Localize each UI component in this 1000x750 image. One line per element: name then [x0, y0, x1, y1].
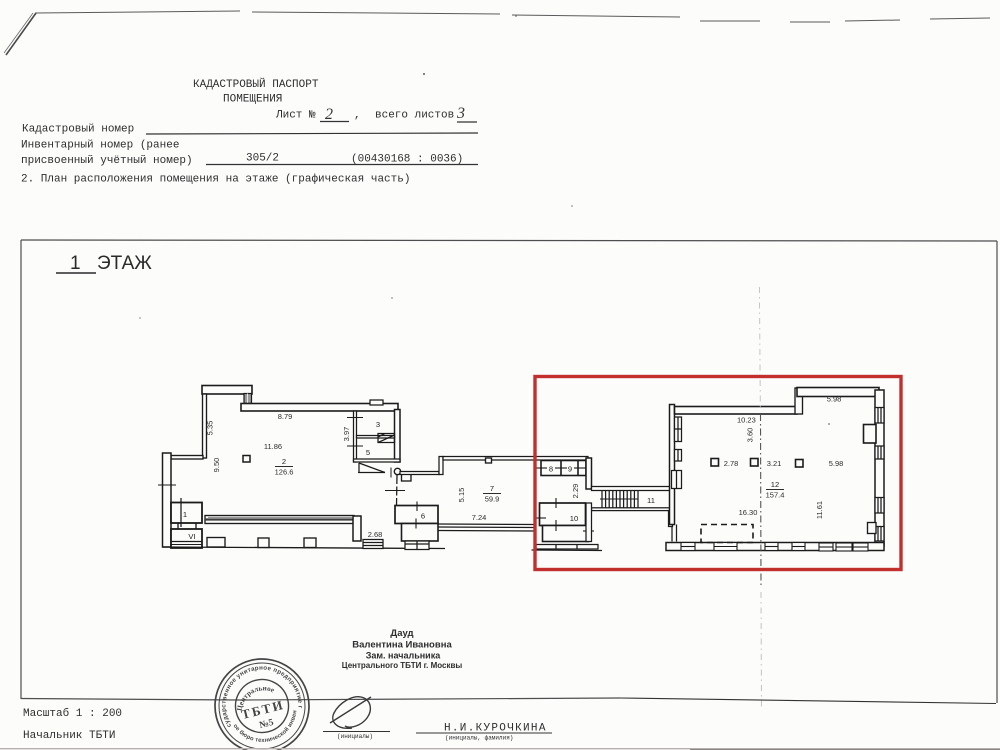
svg-text:11.61: 11.61	[815, 501, 824, 519]
svg-text:ПОМЕЩЕНИЯ: ПОМЕЩЕНИЯ	[223, 94, 282, 106]
svg-text:3.60: 3.60	[746, 428, 755, 443]
svg-text:,: ,	[354, 110, 361, 122]
svg-text:6: 6	[421, 512, 425, 521]
svg-text:VI: VI	[188, 532, 195, 541]
svg-text:2.68: 2.68	[368, 530, 383, 539]
svg-text:126.6: 126.6	[275, 468, 294, 477]
svg-text:10: 10	[570, 514, 578, 523]
svg-text:2: 2	[282, 457, 286, 466]
svg-text:Дауд: Дауд	[390, 628, 413, 639]
svg-text:КАДАСТРОВЫЙ ПАСПОРТ: КАДАСТРОВЫЙ ПАСПОРТ	[193, 77, 319, 91]
svg-text:Инвентарный номер (ранее: Инвентарный номер (ранее	[21, 140, 179, 152]
svg-text:5.98: 5.98	[829, 459, 844, 468]
svg-text:Начальник ТБТИ: Начальник ТБТИ	[23, 730, 115, 742]
svg-text:3.97: 3.97	[342, 427, 351, 442]
svg-text:11: 11	[647, 496, 655, 505]
svg-text:8: 8	[549, 465, 553, 474]
svg-text:1: 1	[183, 510, 187, 519]
svg-text:(инициалы, фамилия): (инициалы, фамилия)	[445, 735, 513, 742]
svg-text:5.15: 5.15	[457, 488, 466, 503]
svg-text:Зам. начальника: Зам. начальника	[366, 651, 441, 661]
svg-text:305/2: 305/2	[246, 153, 279, 165]
svg-text:2: 2	[325, 106, 333, 123]
svg-text:8.79: 8.79	[278, 412, 293, 421]
svg-text:9.50: 9.50	[212, 458, 221, 473]
svg-text:5.35: 5.35	[206, 421, 215, 436]
svg-text:9: 9	[568, 465, 572, 474]
svg-text:157.4: 157.4	[766, 491, 785, 500]
svg-text:всего листов: всего листов	[375, 110, 454, 122]
svg-text:3: 3	[456, 105, 465, 122]
svg-text:Масштаб 1 : 200: Масштаб 1 : 200	[23, 707, 122, 720]
svg-text:1: 1	[70, 253, 81, 274]
svg-text:(инициалы): (инициалы)	[337, 733, 373, 740]
svg-text:16.30: 16.30	[739, 508, 758, 517]
svg-text:7: 7	[490, 484, 494, 493]
svg-text:3.21: 3.21	[767, 459, 782, 468]
svg-text:5.98: 5.98	[827, 395, 842, 404]
svg-text:Лист №: Лист №	[275, 110, 316, 122]
svg-text:11.86: 11.86	[264, 442, 282, 451]
svg-text:2.78: 2.78	[724, 459, 739, 468]
svg-text:3: 3	[376, 420, 380, 429]
svg-text:присвоенный учётный номер): присвоенный учётный номер)	[21, 155, 193, 167]
svg-text:2.29: 2.29	[571, 484, 580, 499]
svg-text:7.24: 7.24	[472, 513, 487, 522]
svg-text:12: 12	[771, 480, 779, 489]
svg-text:10.23: 10.23	[737, 416, 756, 425]
svg-text:Валентина Ивановна: Валентина Ивановна	[352, 640, 452, 651]
svg-text:5: 5	[366, 448, 370, 457]
svg-text:Кадастровый номер: Кадастровый номер	[22, 124, 134, 136]
svg-text:2. План расположения помещения: 2. План расположения помещения на этаже …	[21, 173, 410, 186]
svg-text:Центрального ТБТИ г. Москвы: Центрального ТБТИ г. Москвы	[342, 661, 463, 670]
svg-text:59.9: 59.9	[485, 495, 500, 504]
svg-text:ЭТАЖ: ЭТАЖ	[97, 253, 152, 274]
svg-text:(00430168 : 0036): (00430168 : 0036)	[351, 154, 463, 166]
